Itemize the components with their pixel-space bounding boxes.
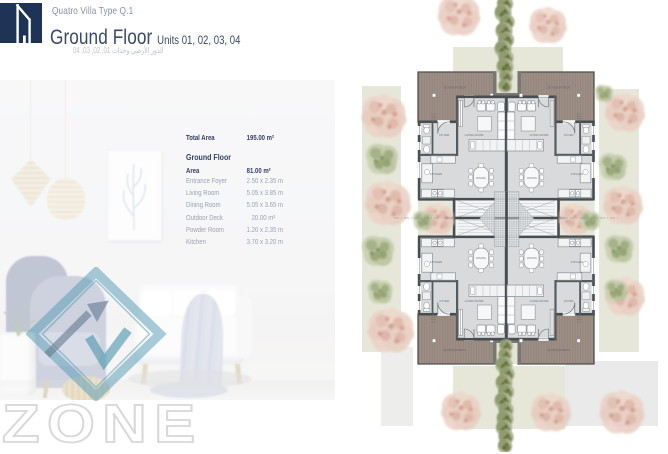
svg-text:LIVING ROOM: LIVING ROOM	[465, 299, 484, 303]
svg-text:DINING: DINING	[476, 256, 486, 260]
svg-text:OUTDOOR DECK: OUTDOOR DECK	[443, 348, 466, 352]
svg-text:FOYER: FOYER	[564, 299, 574, 303]
svg-text:FOYER: FOYER	[439, 133, 449, 137]
svg-text:DINING: DINING	[527, 256, 537, 260]
svg-text:FOYER: FOYER	[564, 133, 574, 137]
svg-text:DINING: DINING	[527, 176, 537, 180]
svg-text:KITCHEN: KITCHEN	[430, 260, 442, 264]
svg-text:KITCHEN: KITCHEN	[430, 172, 442, 176]
svg-text:KITCHEN: KITCHEN	[571, 172, 583, 176]
svg-text:OUTDOOR DECK: OUTDOOR DECK	[443, 86, 466, 90]
svg-text:KITCHEN: KITCHEN	[571, 260, 583, 264]
svg-text:DINING: DINING	[476, 176, 486, 180]
svg-text:LIVING ROOM: LIVING ROOM	[530, 133, 549, 137]
svg-text:FOYER: FOYER	[439, 299, 449, 303]
svg-text:OUTDOOR DECK: OUTDOOR DECK	[547, 348, 570, 352]
svg-text:LIVING ROOM: LIVING ROOM	[465, 133, 484, 137]
svg-text:LIVING ROOM: LIVING ROOM	[530, 299, 549, 303]
svg-text:OUTDOOR DECK: OUTDOOR DECK	[547, 86, 570, 90]
